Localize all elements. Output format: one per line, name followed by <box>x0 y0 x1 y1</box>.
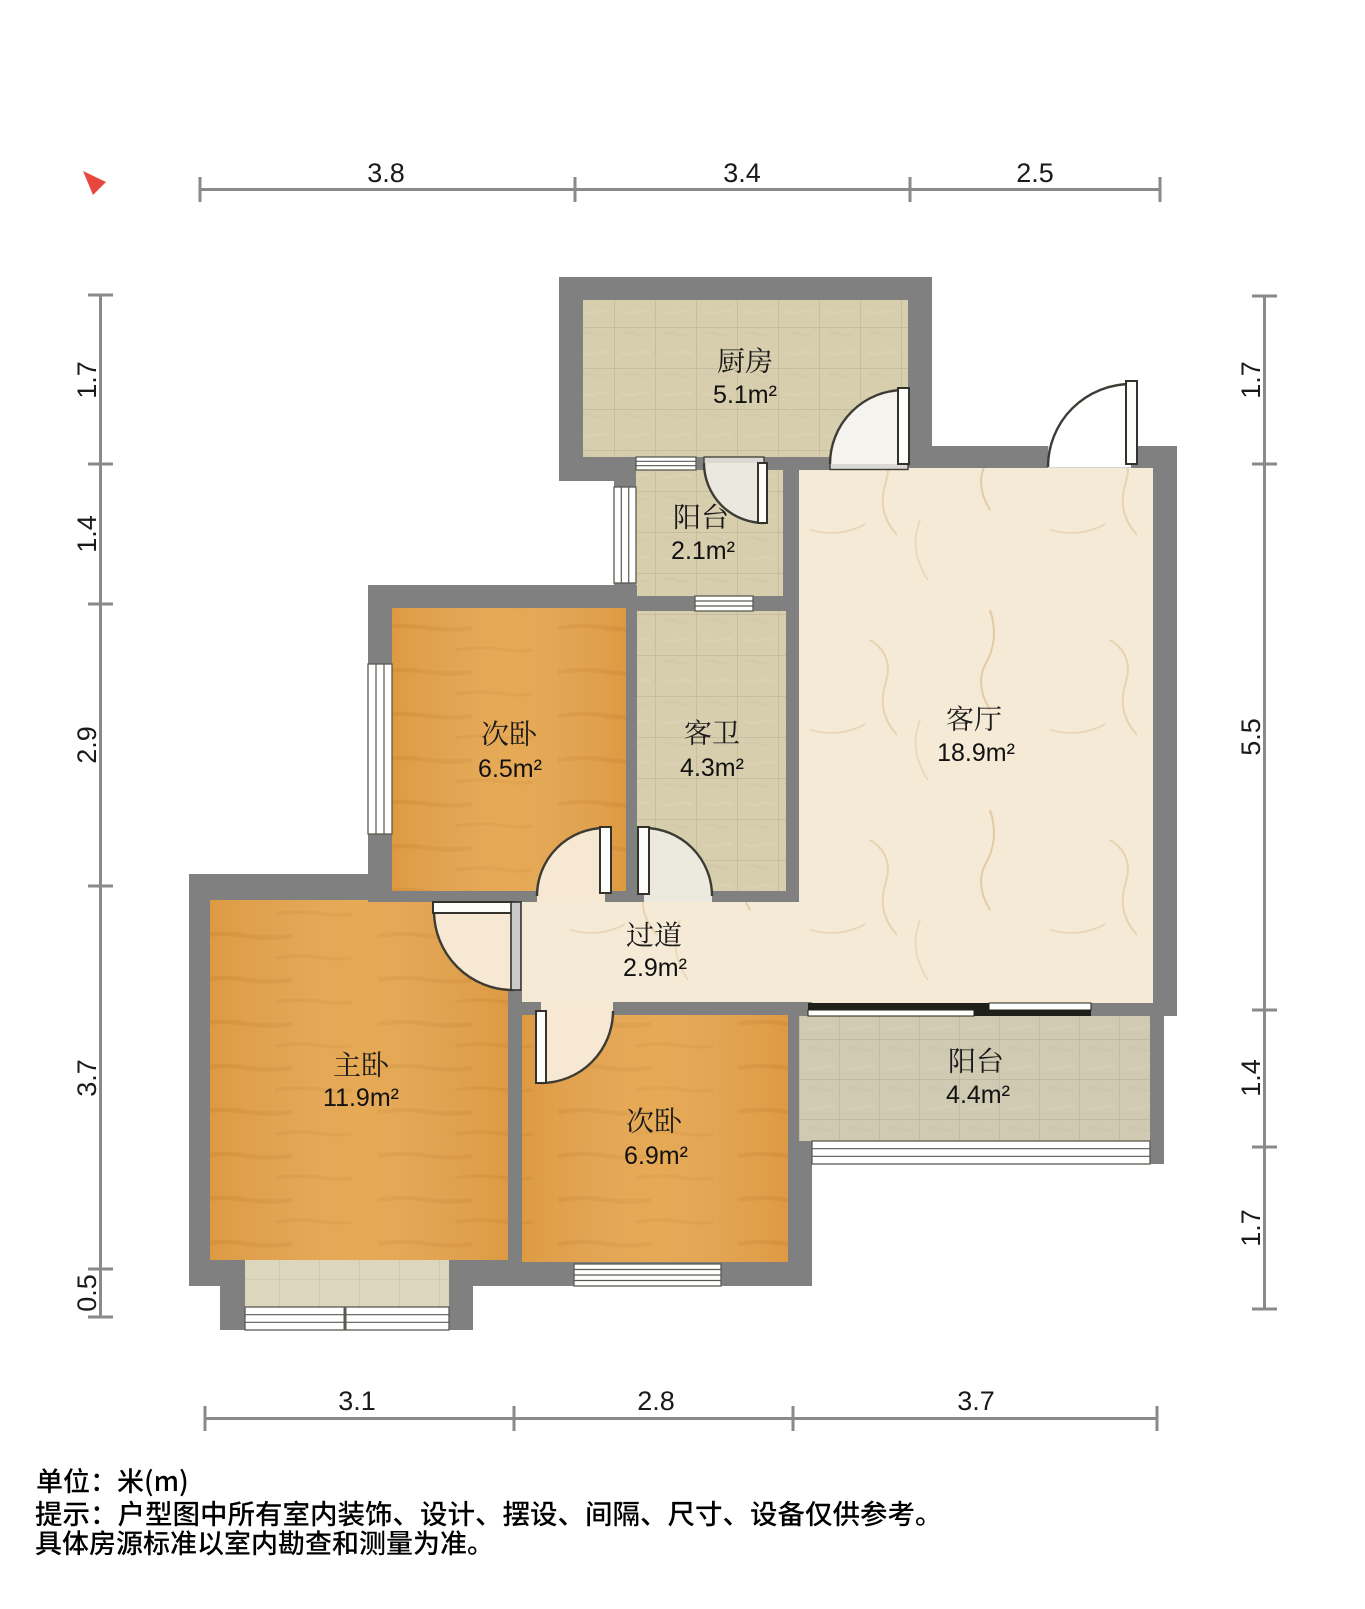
svg-text:1.4: 1.4 <box>72 515 102 553</box>
svg-text:5.1m²: 5.1m² <box>713 381 777 409</box>
svg-text:6.9m²: 6.9m² <box>624 1142 688 1170</box>
svg-text:0.5: 0.5 <box>72 1274 102 1312</box>
svg-text:1.4: 1.4 <box>1236 1059 1266 1097</box>
svg-text:1.7: 1.7 <box>72 361 102 399</box>
svg-text:6.5m²: 6.5m² <box>478 755 542 783</box>
svg-text:1.7: 1.7 <box>1236 361 1266 399</box>
svg-text:3.4: 3.4 <box>723 158 761 188</box>
svg-text:11.9m²: 11.9m² <box>323 1084 399 1112</box>
svg-text:2.5: 2.5 <box>1016 158 1054 188</box>
svg-text:4.4m²: 4.4m² <box>946 1081 1010 1109</box>
svg-text:2.8: 2.8 <box>637 1386 675 1416</box>
svg-text:3.7: 3.7 <box>957 1386 995 1416</box>
svg-text:3.1: 3.1 <box>338 1386 376 1416</box>
svg-text:1.7: 1.7 <box>1236 1209 1266 1247</box>
svg-text:2.9m²: 2.9m² <box>623 954 687 982</box>
svg-text:18.9m²: 18.9m² <box>937 739 1015 767</box>
svg-text:2.9: 2.9 <box>72 726 102 764</box>
svg-text:4.3m²: 4.3m² <box>680 754 744 782</box>
svg-text:3.8: 3.8 <box>367 158 405 188</box>
svg-text:5.5: 5.5 <box>1236 718 1266 756</box>
svg-text:3.7: 3.7 <box>72 1059 102 1097</box>
svg-text:2.1m²: 2.1m² <box>671 537 735 565</box>
